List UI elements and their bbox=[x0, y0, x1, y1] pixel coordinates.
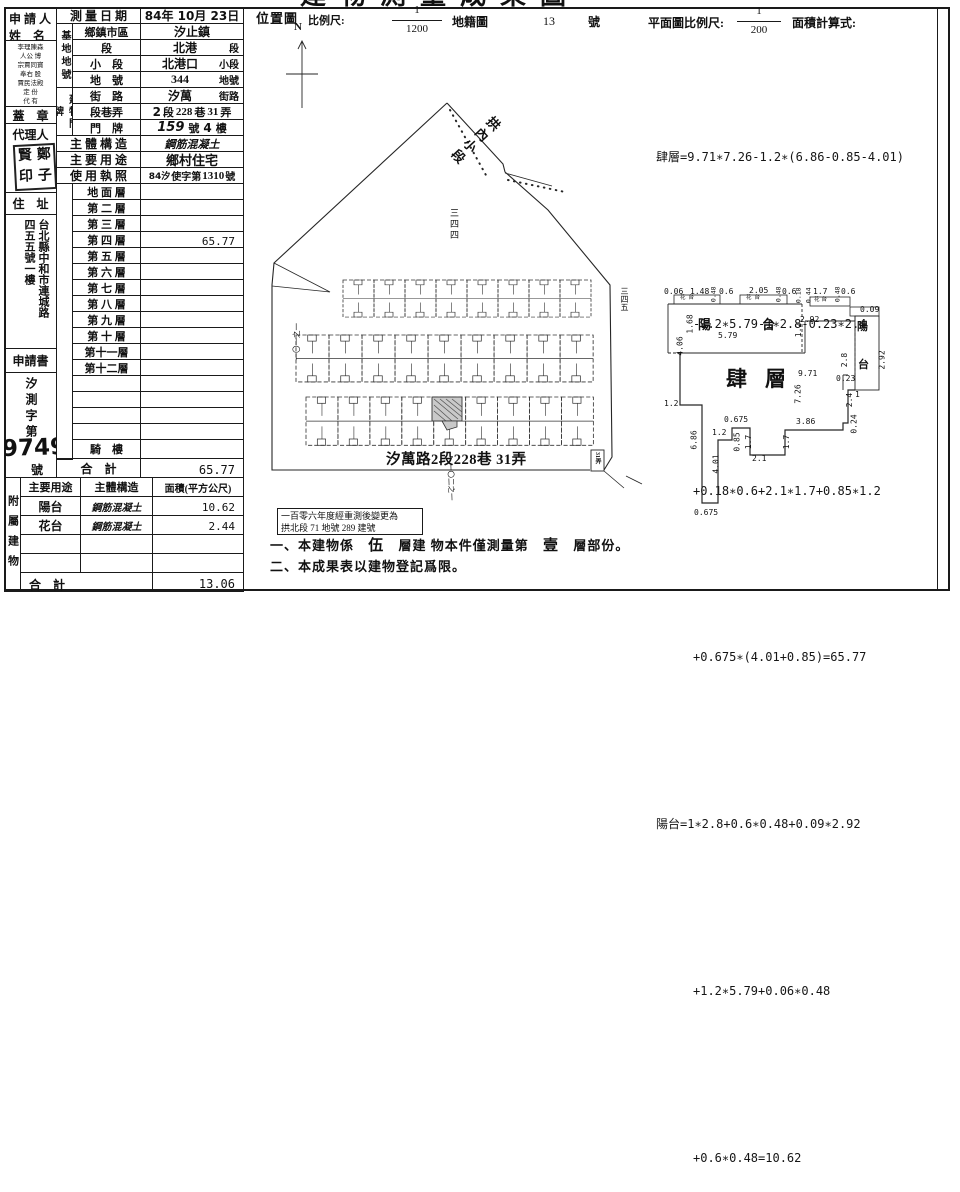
floor-value-cell bbox=[140, 215, 244, 232]
floor-value-cell bbox=[140, 199, 244, 216]
agent-seal-stamp: 賢 鄭 印 子 bbox=[13, 143, 57, 191]
floor-label-cell: 第十二層 bbox=[72, 359, 141, 376]
door-no-value: 159 bbox=[157, 120, 184, 135]
subsection-value: 北港口 bbox=[141, 55, 219, 72]
balcony-label-left: 陽 bbox=[698, 318, 711, 331]
floor-label-cell bbox=[72, 391, 141, 408]
center-lot-number: 三四四 bbox=[449, 208, 458, 241]
attached-strip: 附屬建物 bbox=[4, 477, 21, 592]
dim-label: 4.01 bbox=[713, 454, 721, 473]
attached-total-value: 13.06 bbox=[199, 577, 235, 591]
main-total-value-cell: 65.77 bbox=[140, 458, 244, 478]
lot-value-cell: 344 地號 bbox=[140, 71, 244, 88]
floor-value-cell bbox=[140, 279, 244, 296]
floor-label: 第 六 層 bbox=[87, 264, 126, 280]
attached-row-use: 陽台 bbox=[20, 496, 81, 516]
application-label-cell: 申請書 bbox=[4, 348, 57, 373]
cadastral-map-label: 地籍圖 bbox=[452, 16, 488, 28]
remeasure-note-line1: 一百零六年度經重測後變更為 bbox=[281, 510, 419, 522]
floor-label: 第 五 層 bbox=[87, 248, 126, 264]
dim-label: 0.24 bbox=[851, 414, 859, 433]
lot-suffix: 地號 bbox=[219, 72, 243, 87]
arcade-label-cell: 騎 樓 bbox=[72, 439, 141, 459]
floor-label-cell: 第 四 層 bbox=[72, 231, 141, 248]
seal-char: 子 bbox=[35, 166, 55, 188]
arcade-label: 騎 樓 bbox=[90, 441, 123, 457]
floor-label-cell: 第 六 層 bbox=[72, 263, 141, 280]
attached-row-empty bbox=[20, 534, 81, 554]
dim-label: 0.6 bbox=[841, 288, 855, 296]
right-lot-number: 三四五 bbox=[620, 287, 628, 311]
floor-label: 第 七 層 bbox=[87, 280, 126, 296]
district-label-cell: 鄉鎮市區 bbox=[72, 23, 141, 40]
floor-value-cell bbox=[140, 391, 244, 408]
attached-header-area-label: 面積(平方公尺) bbox=[165, 480, 232, 495]
survey-date-value-cell: 84年 10月 23日 bbox=[140, 7, 244, 24]
usage-label: 主 要 用 途 bbox=[57, 151, 140, 168]
floor-label-cell bbox=[72, 423, 141, 440]
floor-label-cell: 第十一層 bbox=[72, 343, 141, 360]
note1-middle: 層建 物本件僅測量第 bbox=[399, 538, 529, 553]
floor-label-cell bbox=[72, 407, 141, 424]
license-label: 使 用 執 照 bbox=[57, 167, 140, 184]
street-value-cell: 汐萬 街路 bbox=[140, 87, 244, 104]
main-total-value: 65.77 bbox=[199, 463, 235, 477]
door-label-cell: 門 牌 bbox=[72, 119, 141, 136]
floor-value-cell bbox=[140, 407, 244, 424]
map-scale-label: 比例尺: bbox=[308, 16, 345, 27]
alley-no-suffix: 弄 bbox=[220, 104, 231, 120]
stamp-text-line: 定 份 bbox=[6, 88, 55, 97]
corner-marker-text: 31弄 bbox=[594, 452, 600, 464]
main-total-label: 合 計 bbox=[80, 460, 116, 477]
dim-label: 0.48 bbox=[711, 286, 718, 302]
seal-char: 印 bbox=[16, 167, 36, 189]
subsection-value-cell: 北港口 小段 bbox=[140, 55, 244, 72]
note1-prefix: 一、本建物係 bbox=[270, 538, 354, 553]
floor-value-cell bbox=[140, 263, 244, 280]
attached-header-area: 面積(平方公尺) bbox=[152, 477, 244, 497]
address-label-text: 住 址 bbox=[12, 195, 48, 212]
dim-label: 1.7 bbox=[813, 288, 827, 296]
usage-label-cell: 主 要 用 途 bbox=[56, 151, 141, 168]
agent-label: 代理人 bbox=[5, 126, 56, 143]
floor-no-value: 4 bbox=[203, 121, 211, 135]
attached-row-struct: 鋼筋混凝土 bbox=[80, 515, 153, 535]
remeasure-note-box: 一百零六年度經重測後變更為 拱北段 71 地號 289 建號 bbox=[277, 508, 423, 535]
dim-label: 0.85 bbox=[734, 432, 742, 451]
floor-label: 第 二 層 bbox=[87, 200, 126, 216]
balcony-struct: 鋼筋混凝土 bbox=[92, 499, 142, 514]
plan-scale-label: 平面圖比例尺: bbox=[648, 17, 724, 29]
attached-total-value-cell: 13.06 bbox=[152, 572, 244, 592]
dim-label: 2.05 bbox=[749, 287, 768, 295]
site-group-header: 基地地號 bbox=[56, 23, 73, 88]
section-suffix: 段 bbox=[229, 40, 243, 55]
address-cell: 台北縣中和市連城路 四五五號一樓 bbox=[4, 214, 57, 349]
floor-value-cell bbox=[140, 183, 244, 200]
arcade-value-cell bbox=[140, 439, 244, 459]
floor-label: 第 三 層 bbox=[87, 216, 126, 232]
usage-value: 鄉村住宅 bbox=[166, 151, 218, 168]
dim-label: 0.09 bbox=[860, 306, 879, 314]
fourth-floor-label: 肆層 bbox=[726, 369, 804, 390]
north-arrow bbox=[286, 41, 318, 108]
dim-label: 0.675 bbox=[724, 416, 748, 424]
attached-header-use: 主要用途 bbox=[20, 477, 81, 497]
floor-label-cell: 地 面 層 bbox=[72, 183, 141, 200]
address-text: 台北縣中和市連城路 四五五號一樓 bbox=[22, 219, 50, 346]
survey-sheet: 建物測量成果圖 申 請 人 姓 名 李理陳森 人公 博 宗賈同寶 奉右 股 賈民… bbox=[0, 0, 960, 596]
street-label-cell: 街 路 bbox=[72, 87, 141, 104]
floor-value-cell bbox=[140, 311, 244, 328]
dim-label: 3.86 bbox=[796, 418, 815, 426]
lot-label: 地 號 bbox=[90, 72, 123, 88]
attached-row-area: 10.62 bbox=[152, 496, 244, 516]
district-value: 汐止鎮 bbox=[174, 23, 210, 40]
street-name-label: 汐萬路2段228巷 31弄 bbox=[386, 453, 527, 468]
note1-storeys-hand: 伍 bbox=[358, 536, 394, 554]
formula-line: 陽台=1∗2.8+0.6∗0.48+0.09∗2.92 bbox=[656, 741, 904, 908]
floor-label: 第 四 層 bbox=[87, 232, 126, 248]
lane-seg-value: 2 bbox=[153, 105, 161, 119]
floor-label: 地 面 層 bbox=[87, 184, 126, 200]
dim-label: 2.4 bbox=[846, 393, 854, 407]
seal-section-label: 蓋 章 bbox=[4, 106, 57, 124]
lane-label-cell: 段巷弄 bbox=[72, 103, 141, 120]
street-value: 汐萬 bbox=[141, 87, 219, 104]
floor-value-cell bbox=[140, 359, 244, 376]
license-label-cell: 使 用 執 照 bbox=[56, 167, 141, 184]
application-no-suffix: 號 bbox=[31, 461, 43, 478]
dim-label: 0.44 bbox=[806, 287, 813, 303]
main-total-label-cell: 合 計 bbox=[56, 458, 141, 478]
door-label: 門 牌 bbox=[90, 120, 123, 136]
application-label-text: 申請書 bbox=[12, 352, 48, 369]
attached-row-empty bbox=[20, 553, 81, 573]
dim-label: 6.86 bbox=[691, 430, 699, 449]
section-label: 段 bbox=[101, 40, 112, 56]
attached-header-use-label: 主要用途 bbox=[29, 479, 73, 495]
balcony-use: 陽台 bbox=[38, 498, 62, 515]
floor-label-cell: 第 二 層 bbox=[72, 199, 141, 216]
dim-label: 1.2 bbox=[664, 400, 678, 408]
floor-label-cell: 第 五 層 bbox=[72, 247, 141, 264]
section-label-cell: 段 bbox=[72, 39, 141, 56]
floor-value-cell bbox=[140, 247, 244, 264]
plan-scale-fraction-bar bbox=[737, 21, 781, 22]
floor-label-cell bbox=[72, 375, 141, 392]
license-word: 使字第 bbox=[171, 168, 201, 183]
flower-box-label: 花台 bbox=[814, 298, 829, 304]
map-scale-numerator: 1 bbox=[392, 5, 442, 16]
seal-char: 賢 bbox=[15, 146, 35, 168]
stamp-text-line: 賈民法殿 bbox=[6, 79, 55, 88]
structure-value: 鋼筋混凝土 bbox=[165, 136, 220, 152]
floor-value-cell bbox=[140, 375, 244, 392]
attached-row-empty bbox=[152, 534, 244, 554]
map-scale-fraction-bar bbox=[392, 20, 442, 21]
district-label: 鄉鎮市區 bbox=[85, 24, 129, 40]
dim-label: 0.18 bbox=[796, 287, 803, 303]
street-suffix: 街路 bbox=[219, 88, 243, 103]
door-value-cell: 159 號 4 樓 bbox=[140, 119, 244, 136]
alley-no-value: 31 bbox=[207, 106, 218, 118]
formula-line: +1.2∗5.79+0.06∗0.48 bbox=[656, 908, 904, 1075]
application-number-cell: 汐測字第 9749 號 bbox=[4, 372, 57, 478]
floor-label: 第十一層 bbox=[85, 344, 129, 360]
dim-label: 5.79 bbox=[718, 332, 737, 340]
floor-value-cell bbox=[140, 295, 244, 312]
lane-no-value: 228 bbox=[176, 106, 193, 118]
site-group-label: 基地地號 bbox=[57, 30, 72, 82]
floor-label: 第十二層 bbox=[85, 360, 129, 376]
dim-label: 1.2 bbox=[712, 429, 726, 437]
door-group-header: 建物門牌 bbox=[56, 87, 73, 136]
applicant-stamp-text-cell: 李理陳森 人公 博 宗賈同寶 奉右 股 賈民法殿 定 份 代 有 bbox=[4, 40, 57, 107]
note1-floor-hand: 壹 bbox=[533, 536, 569, 554]
balcony-label-left2: 台 bbox=[762, 318, 775, 331]
building-row bbox=[296, 335, 593, 382]
application-no-value: 9749 bbox=[4, 434, 57, 462]
lane-no-suffix: 巷 bbox=[194, 104, 205, 120]
license-number: 1310 bbox=[202, 170, 224, 182]
area-calc-formulas: 肆層=9.71∗7.26-1.2∗(6.86-0.85-4.01) -1.2∗5… bbox=[656, 74, 904, 1192]
district-value-cell: 汐止鎮 bbox=[140, 23, 244, 40]
lot-label-cell: 地 號 bbox=[72, 71, 141, 88]
attached-header-struct-label: 主體構造 bbox=[95, 479, 139, 495]
attached-total-label-cell: 合 計 bbox=[20, 572, 153, 592]
floor-value-cell bbox=[140, 423, 244, 440]
flower-box-label: 花台 bbox=[746, 296, 763, 302]
floor-label-cell: 第 九 層 bbox=[72, 311, 141, 328]
floor-label: 第 九 層 bbox=[87, 312, 126, 328]
dim-label: 0.675 bbox=[694, 509, 718, 517]
attached-total-label: 合 計 bbox=[29, 578, 65, 592]
section-value: 北港 bbox=[141, 39, 229, 56]
note1-suffix: 層部份。 bbox=[573, 538, 629, 553]
stamp-text-line: 李理陳森 bbox=[6, 43, 55, 52]
attached-row-empty bbox=[80, 553, 153, 573]
balcony-label-right2: 台 bbox=[858, 360, 869, 371]
application-no-prefix: 汐測字第 bbox=[23, 377, 40, 443]
floor-label-cell: 第 十 層 bbox=[72, 327, 141, 344]
attached-row-use: 花台 bbox=[20, 515, 81, 535]
usage-value-cell: 鄉村住宅 bbox=[140, 151, 244, 168]
site-plan-drawing bbox=[246, 30, 648, 505]
floor-label-cell: 第 七 層 bbox=[72, 279, 141, 296]
floor-label-cell: 第 三 層 bbox=[72, 215, 141, 232]
floor-value-cell bbox=[140, 327, 244, 344]
lot-value: 344 bbox=[141, 72, 219, 87]
door-group-label: 建物門牌 bbox=[56, 88, 73, 135]
dim-label: 4.06 bbox=[677, 336, 685, 355]
seal-char: 鄭 bbox=[34, 145, 54, 167]
applicant-name-cell: 申 請 人 姓 名 bbox=[4, 7, 57, 41]
subsection-suffix: 小段 bbox=[219, 56, 243, 71]
dim-label: 1.7 bbox=[745, 435, 753, 449]
lane-label: 段巷弄 bbox=[90, 104, 123, 120]
address-label-cell: 住 址 bbox=[4, 192, 57, 215]
subsection-label-cell: 小 段 bbox=[72, 55, 141, 72]
note-line-2: 二、本成果表以建物登記爲限。 bbox=[270, 560, 466, 573]
survey-date-label-cell: 測 量 日 期 bbox=[56, 7, 141, 24]
subsection-label: 小 段 bbox=[90, 56, 123, 72]
surveyed-unit-hatch bbox=[432, 397, 462, 430]
formula-line: 肆層=9.71∗7.26-1.2∗(6.86-0.85-4.01) bbox=[656, 74, 904, 241]
stamp-text-line: 人公 博 bbox=[6, 52, 55, 61]
note-line-1: 一、本建物係 伍 層建 物本件僅測量第 壹 層部份。 bbox=[270, 538, 629, 553]
attached-row-empty bbox=[80, 534, 153, 554]
cadastral-sheet-unit: 號 bbox=[588, 16, 600, 28]
survey-date-value: 84年 10月 23日 bbox=[145, 7, 239, 24]
floor-label: 第 十 層 bbox=[87, 328, 126, 344]
bottom-lot-number: 一〇二之一 bbox=[446, 463, 455, 501]
seal-label-text: 蓋 章 bbox=[12, 107, 48, 124]
attached-header-struct: 主體構造 bbox=[80, 477, 153, 497]
building-row bbox=[343, 280, 591, 317]
floor-no-suffix: 樓 bbox=[216, 120, 227, 136]
license-value-cell: 84汐 使字第 1310 號 bbox=[140, 167, 244, 184]
dim-label: 1.7 bbox=[783, 435, 791, 449]
door-no-suffix: 號 bbox=[188, 120, 199, 136]
flowerbed-struct: 鋼筋混凝土 bbox=[92, 518, 142, 533]
applicant-label-line1: 申 請 人 bbox=[9, 10, 52, 27]
plan-scale-denominator: 200 bbox=[737, 25, 781, 36]
dim-label: 2.92 bbox=[800, 316, 819, 324]
attached-row-area: 2.44 bbox=[152, 515, 244, 535]
attached-row-empty bbox=[152, 553, 244, 573]
dim-label: 1.68 bbox=[687, 314, 695, 333]
dim-label: 2.8 bbox=[841, 353, 849, 367]
stamp-text-line: 代 有 bbox=[6, 97, 55, 106]
lane-seg-suffix: 段 bbox=[163, 104, 174, 120]
balcony-area: 10.62 bbox=[202, 501, 235, 514]
dim-label: 2.1 bbox=[752, 455, 766, 463]
lane-value-cell: 2 段 228 巷 31 弄 bbox=[140, 103, 244, 120]
dim-label: 2.92 bbox=[879, 350, 887, 369]
remeasure-note-line2: 拱北段 71 地號 289 建號 bbox=[281, 522, 419, 534]
flowerbed-area: 2.44 bbox=[209, 520, 236, 533]
cadastral-sheet-number: 13 bbox=[543, 15, 555, 27]
floor-label: 第 八 層 bbox=[87, 296, 126, 312]
floor-strip-spacer bbox=[56, 183, 73, 460]
license-year: 84汐 bbox=[149, 169, 171, 182]
floor-value-cell bbox=[140, 343, 244, 360]
floor-value-cell: 65.77 bbox=[140, 231, 244, 248]
plan-scale-numerator: 1 bbox=[737, 6, 781, 17]
balcony-label-right: 陽 bbox=[857, 322, 868, 333]
floor-label-cell: 第 八 層 bbox=[72, 295, 141, 312]
street-label: 街 路 bbox=[90, 88, 123, 104]
dim-label: 1 bbox=[855, 391, 860, 399]
dim-label: 0.23 bbox=[836, 375, 855, 383]
section-value-cell: 北港 段 bbox=[140, 39, 244, 56]
flower-box-label: 花台 bbox=[680, 296, 697, 302]
license-suffix: 號 bbox=[225, 168, 235, 183]
dim-label: 0.6 bbox=[719, 288, 733, 296]
dim-label: 1.2 bbox=[795, 323, 803, 337]
stamp-text-line: 宗賈同寶 bbox=[6, 61, 55, 70]
location-map-label: 位置圖 bbox=[256, 12, 298, 25]
attached-row-struct: 鋼筋混凝土 bbox=[80, 496, 153, 516]
survey-date-label: 測 量 日 期 bbox=[57, 7, 140, 24]
structure-value-cell: 鋼筋混凝土 bbox=[140, 135, 244, 152]
formula-line: +0.6∗0.48=10.62 bbox=[656, 1075, 904, 1192]
formula-line: +0.675∗(4.01+0.85)=65.77 bbox=[656, 574, 904, 741]
applicant-label-line2: 姓 名 bbox=[9, 27, 52, 41]
structure-label-cell: 主 體 構 造 bbox=[56, 135, 141, 152]
structure-label: 主 體 構 造 bbox=[57, 135, 140, 152]
agent-cell: 代理人 賢 鄭 印 子 bbox=[4, 123, 57, 193]
area-calc-label: 面積計算式: bbox=[792, 17, 856, 29]
flowerbed-use: 花台 bbox=[38, 517, 62, 534]
left-lot-number: 一〇一之一 bbox=[293, 323, 301, 361]
attached-strip-label: 附屬建物 bbox=[5, 495, 21, 575]
stamp-text-line: 奉右 股 bbox=[6, 70, 55, 79]
